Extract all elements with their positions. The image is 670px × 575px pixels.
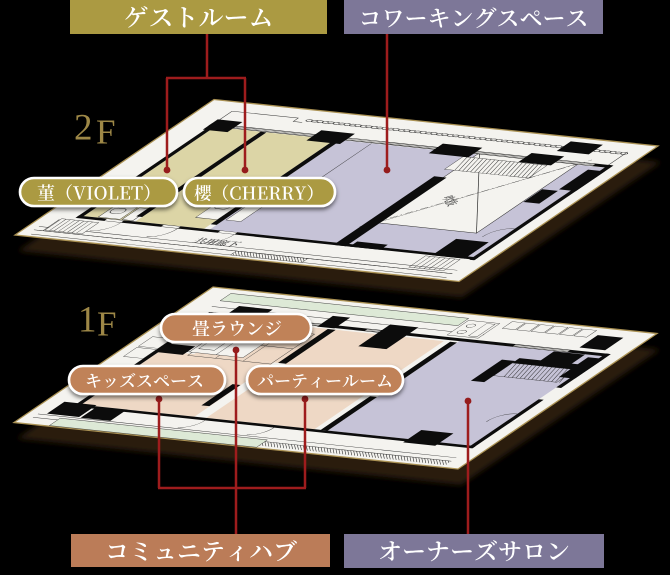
svg-text:F: F xyxy=(97,305,116,344)
svg-text:F: F xyxy=(96,113,115,152)
svg-text:1: 1 xyxy=(78,300,97,341)
svg-text:2: 2 xyxy=(74,108,93,149)
